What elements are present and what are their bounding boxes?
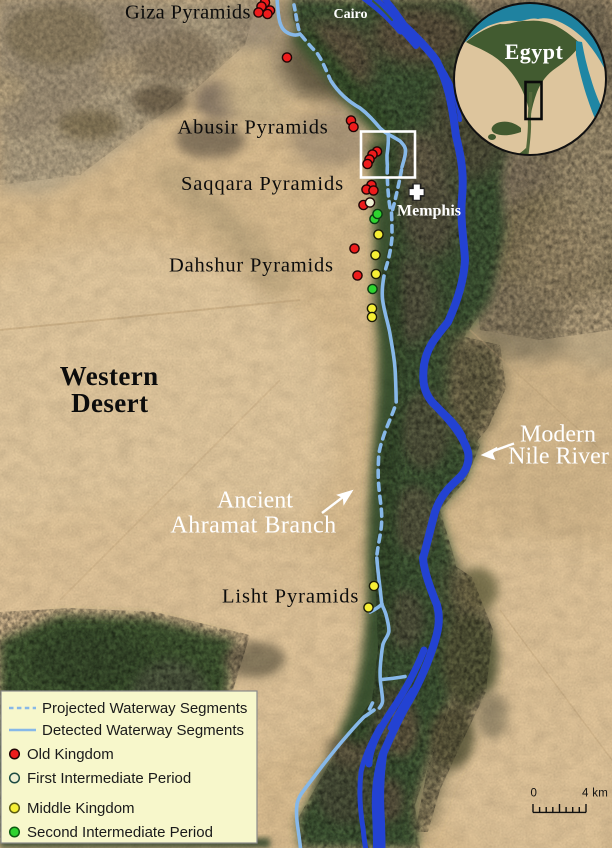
svg-text:Cairo: Cairo — [334, 7, 368, 22]
svg-text:Old Kingdom: Old Kingdom — [27, 746, 114, 763]
svg-text:Abusir Pyramids: Abusir Pyramids — [178, 117, 329, 139]
svg-text:Giza Pyramids: Giza Pyramids — [125, 2, 251, 24]
svg-text:Desert: Desert — [71, 388, 148, 418]
svg-text:Detected Waterway Segments: Detected Waterway Segments — [42, 722, 244, 739]
svg-text:Second Intermediate Period: Second Intermediate Period — [27, 824, 213, 841]
svg-text:Saqqara Pyramids: Saqqara Pyramids — [181, 173, 344, 195]
svg-text:First Intermediate Period: First Intermediate Period — [27, 770, 191, 787]
svg-text:Middle Kingdom: Middle Kingdom — [27, 800, 135, 817]
svg-text:Memphis: Memphis — [397, 203, 461, 220]
svg-text:0: 0 — [531, 788, 537, 800]
svg-text:Ancient: Ancient — [217, 487, 293, 513]
svg-text:Projected Waterway Segments: Projected Waterway Segments — [42, 700, 247, 717]
svg-text:Ahramat Branch: Ahramat Branch — [170, 513, 336, 539]
svg-text:Dahshur Pyramids: Dahshur Pyramids — [169, 255, 334, 277]
svg-text:Egypt: Egypt — [505, 39, 564, 64]
svg-text:4 km: 4 km — [582, 788, 608, 800]
svg-text:Western: Western — [60, 361, 159, 391]
svg-text:Lisht Pyramids: Lisht Pyramids — [222, 586, 359, 608]
svg-text:Nile River: Nile River — [508, 443, 609, 469]
